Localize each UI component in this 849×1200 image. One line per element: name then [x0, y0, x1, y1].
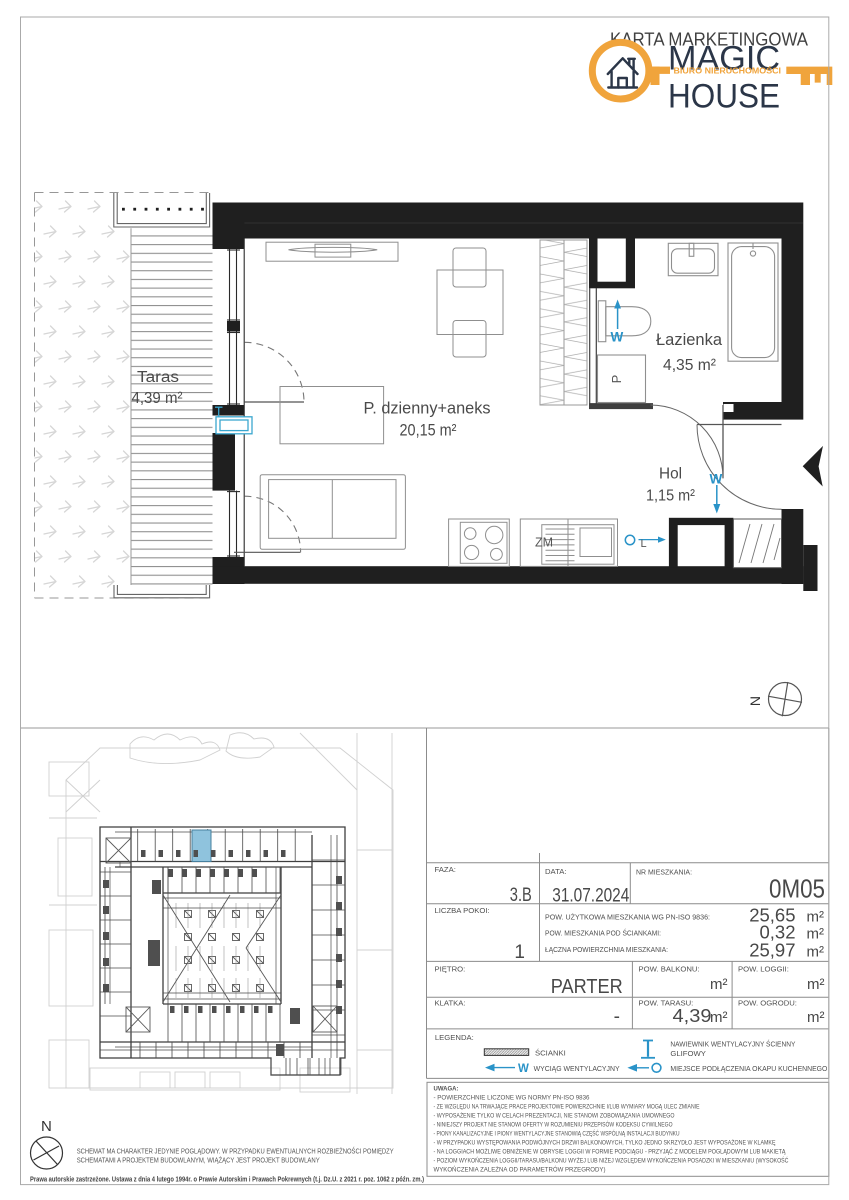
svg-text:m²: m²	[807, 944, 825, 961]
svg-text:- W PRZYPADKU WYSTĘPOWANIA PO: - W PRZYPADKU WYSTĘPOWANIA PODWÓJNYCH DR…	[434, 1138, 776, 1147]
svg-text:20,15 m²: 20,15 m²	[400, 421, 457, 440]
svg-text:- WYPOSAŻENIE TYLKO W CELACH P: - WYPOSAŻENIE TYLKO W CELACH PREZENTACJI…	[434, 1111, 675, 1120]
svg-text:- POZIOM WYKOŃCZENIA LOGGII/TA: - POZIOM WYKOŃCZENIA LOGGII/TARASU/BALKO…	[434, 1156, 789, 1165]
svg-text:25,97: 25,97	[749, 940, 795, 961]
svg-text:Prawa autorskie zastrzeżone. U: Prawa autorskie zastrzeżone. Ustawa z dn…	[30, 1175, 424, 1184]
svg-text:PIĘTRO:: PIĘTRO:	[435, 965, 466, 974]
svg-text:0M05: 0M05	[769, 875, 825, 903]
svg-text:KLATKA:: KLATKA:	[435, 999, 466, 1008]
svg-text:P. dzienny+aneks: P. dzienny+aneks	[364, 399, 491, 418]
svg-text:31.07.2024: 31.07.2024	[552, 886, 629, 907]
svg-text:4,39: 4,39	[673, 1005, 712, 1026]
svg-text:ŁĄCZNA POWIERZCHNIA MIESZKANIA: ŁĄCZNA POWIERZCHNIA MIESZKANIA:	[545, 945, 668, 954]
svg-text:HOUSE: HOUSE	[668, 78, 780, 116]
svg-text:Łazienka: Łazienka	[656, 330, 723, 349]
svg-text:N: N	[747, 696, 763, 706]
svg-text:Taras: Taras	[137, 369, 179, 386]
svg-text:FAZA:: FAZA:	[435, 865, 456, 874]
svg-text:POW. LOGGII:: POW. LOGGII:	[738, 965, 789, 974]
svg-text:LEGENDA:: LEGENDA:	[435, 1033, 474, 1042]
svg-text:-: -	[614, 1007, 620, 1028]
svg-text:m²: m²	[710, 976, 728, 993]
svg-text:4,35 m²: 4,35 m²	[663, 357, 717, 374]
svg-text:NR MIESZKANIA:: NR MIESZKANIA:	[636, 868, 692, 877]
svg-text:m²: m²	[807, 909, 825, 926]
svg-text:P: P	[609, 375, 624, 384]
svg-text:N: N	[41, 1118, 52, 1135]
svg-text:- ZE WZGLĘDU NA TRWAJĄCE PRACE: - ZE WZGLĘDU NA TRWAJĄCE PRACE PROJEKTOW…	[434, 1104, 700, 1111]
svg-text:GLIFOWY: GLIFOWY	[670, 1049, 705, 1058]
svg-text:ŚCIANKI: ŚCIANKI	[535, 1049, 566, 1058]
svg-text:DATA:: DATA:	[545, 867, 567, 876]
svg-text:L: L	[641, 538, 647, 550]
svg-text:1: 1	[514, 942, 525, 963]
svg-text:WYCIĄG WENTYLACYJNY: WYCIĄG WENTYLACYJNY	[534, 1064, 620, 1073]
svg-text:SCHEMATAMI A PROJEKTEM BUDOWLA: SCHEMATAMI A PROJEKTEM BUDOWLANYM, WIĄŻĄ…	[77, 1156, 320, 1165]
svg-text:W: W	[710, 472, 723, 487]
svg-text:Hol: Hol	[659, 466, 682, 483]
svg-text:POW. OGRODU:: POW. OGRODU:	[738, 999, 797, 1008]
svg-text:POW. MIESZKANIA POD ŚCIANKAMI:: POW. MIESZKANIA POD ŚCIANKAMI:	[545, 929, 661, 938]
svg-text:NAWIEWNIK WENTYLACYJNY ŚCIENNY: NAWIEWNIK WENTYLACYJNY ŚCIENNY	[670, 1040, 795, 1049]
svg-text:W: W	[518, 1063, 529, 1075]
svg-text:- PIONY KANALIZACYJNE I PIONY: - PIONY KANALIZACYJNE I PIONY WENTYLACYJ…	[434, 1129, 680, 1138]
svg-text:BIURO NIERUCHOMOŚCI: BIURO NIERUCHOMOŚCI	[674, 65, 782, 76]
svg-text:- POWIERZCHNIE LICZONE WG NORM: - POWIERZCHNIE LICZONE WG NORMY PN-ISO 9…	[434, 1095, 590, 1102]
svg-text:ZM: ZM	[535, 536, 553, 550]
svg-text:W: W	[611, 330, 624, 345]
svg-text:m²: m²	[807, 1009, 825, 1026]
svg-text:m²: m²	[807, 926, 825, 943]
svg-text:SCHEMAT MA CHARAKTER JEDYNIE P: SCHEMAT MA CHARAKTER JEDYNIE POGLĄDOWY. …	[77, 1147, 394, 1156]
svg-text:m²: m²	[710, 1009, 728, 1026]
svg-text:POW. BALKONU:: POW. BALKONU:	[639, 965, 700, 974]
svg-text:1,15 m²: 1,15 m²	[646, 488, 696, 505]
svg-text:m²: m²	[807, 976, 825, 993]
svg-text:POW. UŻYTKOWA MIESZKANIA WG PN: POW. UŻYTKOWA MIESZKANIA WG PN-ISO 9836:	[545, 913, 710, 922]
svg-text:MIEJSCE PODŁĄCZENIA OKAPU KUCH: MIEJSCE PODŁĄCZENIA OKAPU KUCHENNEGO	[670, 1064, 827, 1073]
svg-text:- NA LOGGIACH MOŻLIWE OBNIŻENI: - NA LOGGIACH MOŻLIWE OBNIŻENIE W OBRYSI…	[434, 1147, 786, 1156]
svg-text:LICZBA POKOI:: LICZBA POKOI:	[435, 906, 490, 915]
svg-text:- NINIEJSZY PROJEKT NIE STANOW: - NINIEJSZY PROJEKT NIE STANOWI OFERTY W…	[434, 1120, 673, 1129]
svg-text:PARTER: PARTER	[551, 976, 623, 998]
svg-text:UWAGA:: UWAGA:	[434, 1086, 459, 1093]
svg-text:WYKOŃCZENIA ZALEŻNA OD PARAMET: WYKOŃCZENIA ZALEŻNA OD PARAMETRÓW PRZEGR…	[434, 1165, 606, 1174]
svg-text:3.B: 3.B	[510, 885, 532, 906]
svg-text:4,39 m²: 4,39 m²	[132, 390, 184, 407]
